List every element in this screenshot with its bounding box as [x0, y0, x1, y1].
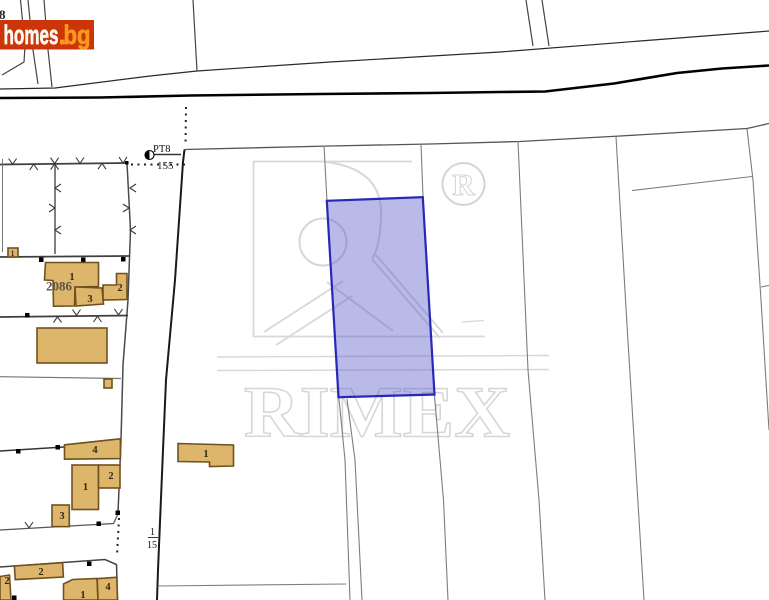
svg-text:15: 15 — [147, 540, 157, 551]
svg-text:R: R — [452, 167, 475, 202]
svg-text:4: 4 — [105, 582, 111, 593]
svg-text:2: 2 — [38, 567, 43, 578]
svg-text:PT8: PT8 — [153, 144, 171, 155]
svg-text:1: 1 — [11, 249, 15, 258]
svg-text:1: 1 — [83, 482, 88, 493]
svg-text:2: 2 — [108, 471, 113, 482]
svg-text:1: 1 — [203, 449, 208, 460]
svg-text:155: 155 — [157, 160, 174, 172]
svg-text:3: 3 — [59, 511, 64, 522]
svg-text:1: 1 — [150, 527, 155, 538]
svg-text:3: 3 — [87, 294, 92, 305]
svg-text:2086: 2086 — [46, 279, 73, 294]
svg-text:bg: bg — [64, 20, 91, 50]
svg-text:homes: homes — [4, 20, 59, 50]
svg-text:2: 2 — [117, 283, 122, 294]
svg-text:4: 4 — [92, 445, 98, 456]
svg-text:1: 1 — [80, 590, 85, 600]
svg-text:2: 2 — [4, 576, 9, 587]
